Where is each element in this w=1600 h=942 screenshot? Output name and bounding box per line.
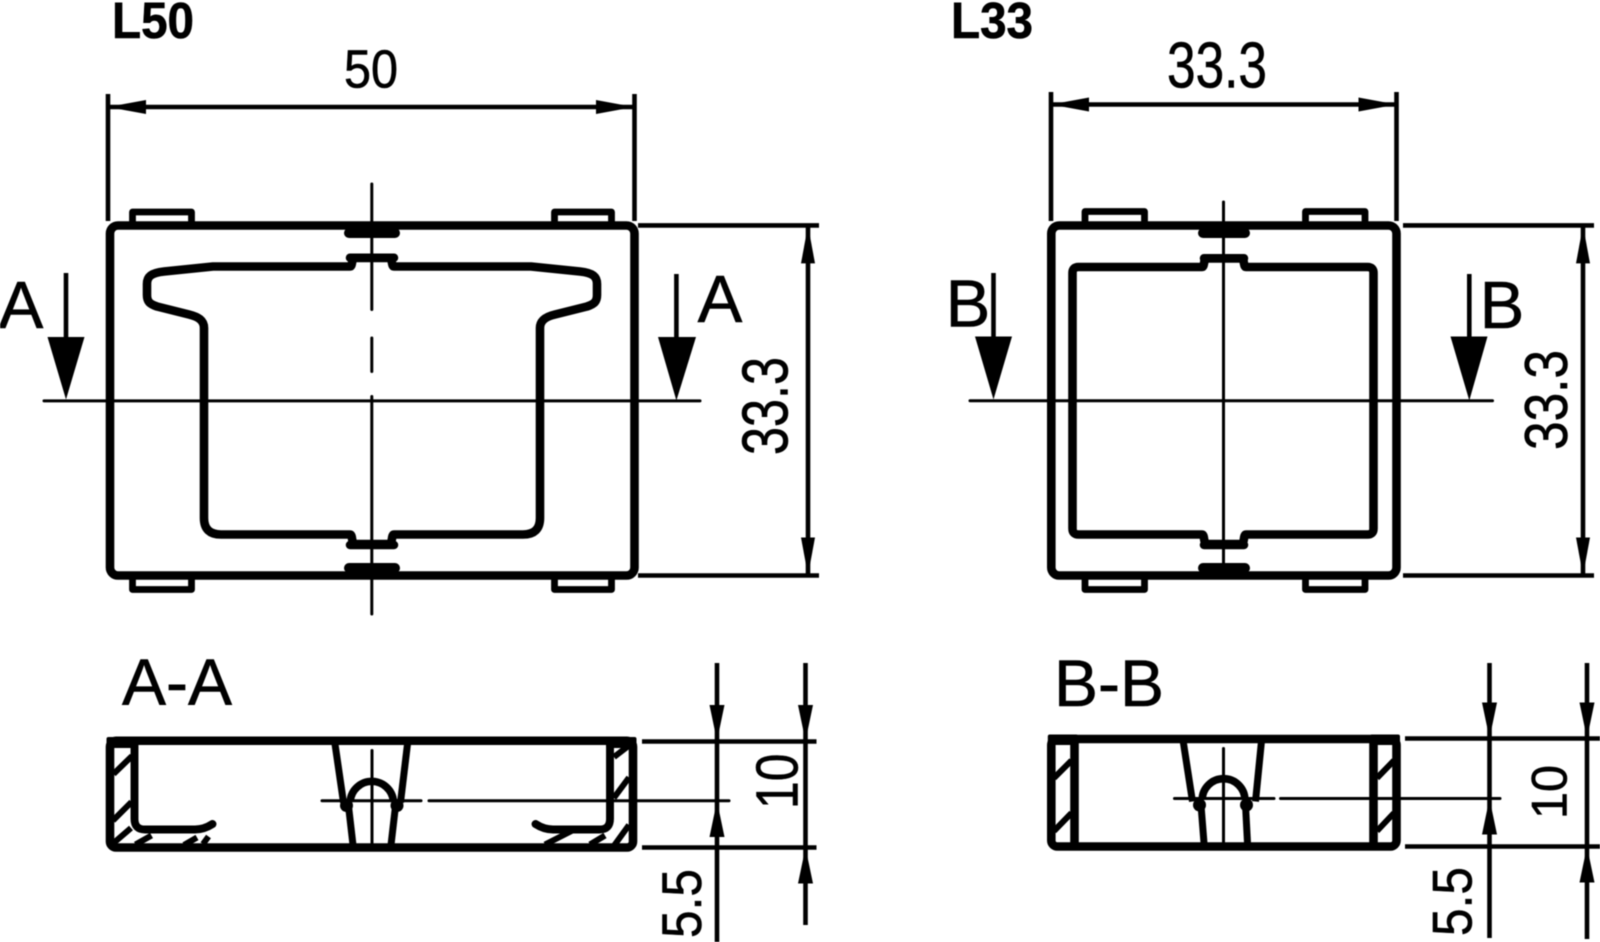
svg-text:5.5: 5.5 bbox=[651, 869, 713, 938]
svg-text:L33: L33 bbox=[951, 0, 1033, 49]
svg-text:A: A bbox=[698, 262, 743, 337]
svg-text:L50: L50 bbox=[112, 0, 194, 49]
svg-text:33.3: 33.3 bbox=[730, 357, 802, 455]
svg-text:33.3: 33.3 bbox=[1513, 350, 1580, 450]
svg-text:B: B bbox=[946, 267, 991, 342]
svg-text:50: 50 bbox=[344, 40, 398, 100]
svg-text:B: B bbox=[1480, 268, 1525, 343]
svg-text:33.3: 33.3 bbox=[1167, 30, 1267, 102]
svg-text:5.5: 5.5 bbox=[1422, 867, 1484, 936]
svg-text:A-A: A-A bbox=[122, 645, 232, 719]
svg-text:10: 10 bbox=[745, 754, 811, 809]
svg-text:10: 10 bbox=[1522, 765, 1578, 819]
svg-text:B-B: B-B bbox=[1054, 646, 1164, 720]
svg-text:A: A bbox=[0, 268, 44, 343]
